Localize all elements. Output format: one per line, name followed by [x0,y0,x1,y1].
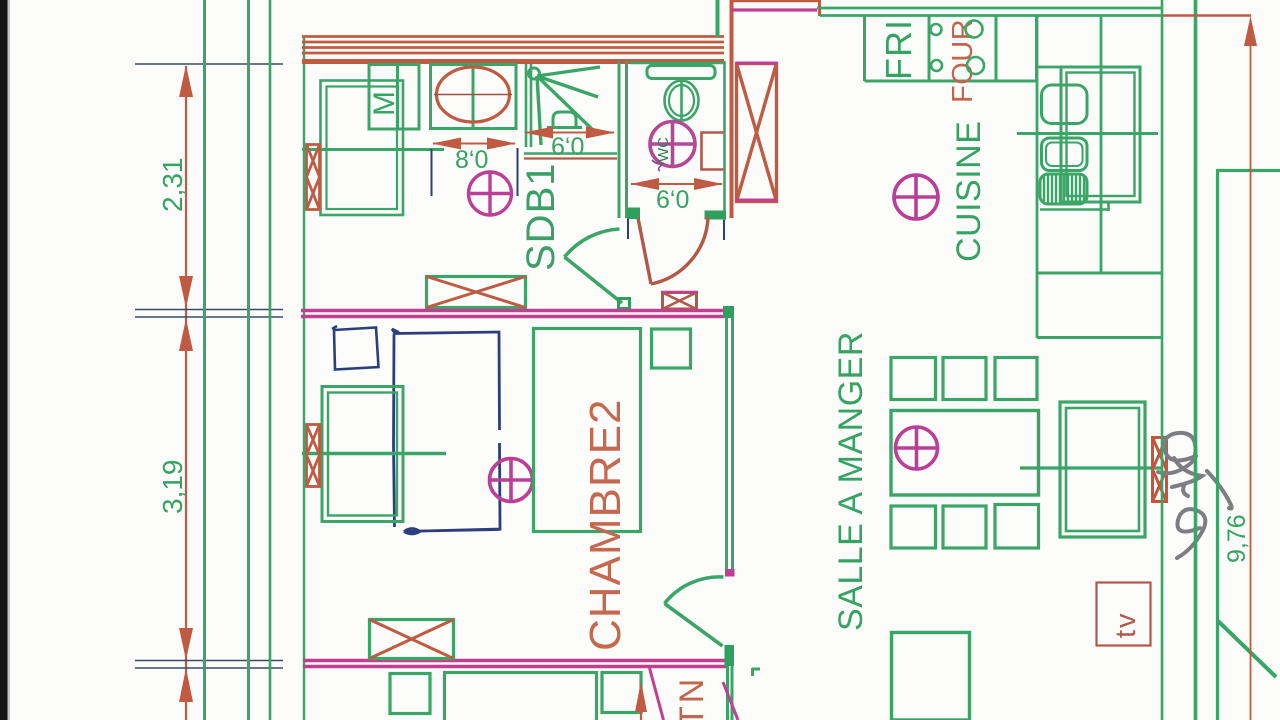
svg-text:3,19: 3,19 [157,460,188,515]
svg-text:CHAMBRE2: CHAMBRE2 [581,399,630,652]
svg-text:M: M [368,91,401,116]
svg-text:FRI: FRI [878,19,919,80]
svg-text:SDB1: SDB1 [519,163,563,272]
svg-text:2,31: 2,31 [157,158,188,213]
svg-text:6‘0: 6‘0 [656,186,689,214]
svg-text:SALLE A MANGER: SALLE A MANGER [832,331,870,631]
svg-text:9,76: 9,76 [1223,514,1251,563]
svg-text:8‘0: 8‘0 [455,146,488,174]
svg-text:tv: tv [1110,611,1142,638]
svg-text:WC: WC [655,137,672,162]
svg-text:FOUR: FOUR [947,19,979,103]
svg-text:6‘0: 6‘0 [551,133,584,161]
svg-text:CUISINE: CUISINE [950,121,988,262]
svg-text:TN: TN [673,676,711,720]
